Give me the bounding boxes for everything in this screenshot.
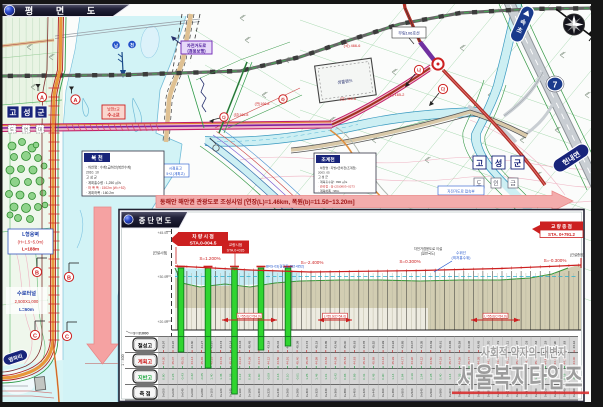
svg-text:45.45: 45.45 <box>248 341 252 349</box>
svg-text:0+080: 0+080 <box>200 388 204 397</box>
svg-text:0.90: 0.90 <box>381 373 385 379</box>
svg-text:서울복지타임즈: 서울복지타임즈 <box>457 363 582 393</box>
svg-text:· 관리청 : 김-(25)0803~0273: · 관리청 : 김-(25)0803~0273 <box>318 183 355 188</box>
svg-text:43.22: 43.22 <box>171 341 175 349</box>
svg-text:(전)166.8: (전)166.8 <box>255 101 270 106</box>
svg-text:0+340: 0+340 <box>324 388 328 397</box>
svg-text:조계천: 조계천 <box>321 156 335 163</box>
svg-text:· 하천명 : 지방2급하천(조계천): · 하천명 : 지방2급하천(조계천) <box>318 165 356 170</box>
svg-text:0+000: 0+000 <box>162 388 166 397</box>
svg-text:45.63: 45.63 <box>353 341 357 349</box>
svg-text:인: 인 <box>493 181 499 188</box>
svg-text:0.80: 0.80 <box>162 373 166 379</box>
svg-text:0+400: 0+400 <box>353 388 357 397</box>
svg-text:45.59: 45.59 <box>458 341 462 349</box>
svg-text:43.45: 43.45 <box>477 341 481 349</box>
svg-text:44.86: 44.86 <box>276 357 280 365</box>
svg-text:45.61: 45.61 <box>439 341 443 349</box>
svg-text:45.01: 45.01 <box>181 357 185 365</box>
svg-text:자전거도로 접속부: 자전거도로 접속부 <box>447 189 475 194</box>
svg-text:고 성 군: 고 성 군 <box>86 175 97 180</box>
svg-text:0+560: 0+560 <box>429 388 433 397</box>
svg-text:45.19: 45.19 <box>314 341 318 349</box>
svg-text:라: 라 <box>281 96 285 102</box>
svg-text:지반고: 지반고 <box>138 374 153 382</box>
svg-text:0+320: 0+320 <box>314 388 318 397</box>
svg-text:43.39: 43.39 <box>429 341 433 349</box>
svg-text:0.10: 0.10 <box>286 373 290 379</box>
svg-text:0+280: 0+280 <box>295 388 299 397</box>
svg-text:45.40: 45.40 <box>295 357 299 365</box>
svg-text:1.40: 1.40 <box>209 373 213 379</box>
svg-text:(겸용보행): (겸용보행) <box>187 48 206 55</box>
svg-text:B: B <box>67 276 71 282</box>
svg-text:-0.25: -0.25 <box>200 373 204 380</box>
svg-text:0.41: 0.41 <box>362 373 366 379</box>
svg-text:· 계획홍수량 : 1,250 ㎥/s: · 계획홍수량 : 1,250 ㎥/s <box>86 180 121 185</box>
svg-text:B: B <box>35 271 39 277</box>
svg-text:0.40: 0.40 <box>439 373 443 379</box>
svg-text:0+100: 0+100 <box>209 388 213 397</box>
svg-text:(건설종점): (건설종점) <box>570 252 584 257</box>
svg-text:-0.32: -0.32 <box>190 373 194 380</box>
svg-text:45.00: 45.00 <box>343 341 347 349</box>
svg-text:1.14: 1.14 <box>448 373 452 379</box>
svg-text:1.25: 1.25 <box>305 373 309 379</box>
svg-text:절성고: 절성고 <box>138 342 153 350</box>
svg-text:0.45: 0.45 <box>372 373 376 379</box>
svg-text:STA.0+035: STA.0+035 <box>227 249 245 253</box>
svg-text:0+200: 0+200 <box>257 388 261 397</box>
svg-text:수-2교: 수-2교 <box>107 112 120 119</box>
svg-text:0.89: 0.89 <box>353 373 357 379</box>
svg-text:천: 천 <box>130 42 134 49</box>
svg-text:0+420: 0+420 <box>362 388 366 397</box>
svg-text:· 계획홍수량 : 890 ㎥/s: · 계획홍수량 : 890 ㎥/s <box>318 179 348 184</box>
svg-text:0+260: 0+260 <box>286 388 290 397</box>
svg-text:44.98: 44.98 <box>334 357 338 365</box>
svg-text:(최저홍수위): (최저홍수위) <box>452 255 471 260</box>
svg-text:7: 7 <box>553 80 558 90</box>
svg-text:44.74: 44.74 <box>257 357 261 365</box>
svg-text:시점표고: 시점표고 <box>169 166 183 171</box>
svg-text:남: 남 <box>114 42 118 49</box>
svg-text:L=55.0(C=54.0): L=55.0(C=54.0) <box>238 314 260 318</box>
svg-text:0+440: 0+440 <box>372 388 376 397</box>
svg-text:도: 도 <box>10 127 14 132</box>
svg-text:1.14: 1.14 <box>391 373 395 379</box>
svg-text:44.12: 44.12 <box>267 357 271 365</box>
svg-text:44.65: 44.65 <box>448 341 452 349</box>
svg-text:44.84: 44.84 <box>324 357 328 365</box>
svg-text:동해안 해안권 관광도로 조성사업 [연장(L)=1.46k: 동해안 해안권 관광도로 조성사업 [연장(L)=1.46km, 폭원(b)=1… <box>160 198 355 206</box>
svg-text:44.63: 44.63 <box>353 357 357 365</box>
svg-text:45.99: 45.99 <box>391 357 395 365</box>
svg-text:무림106호선: 무림106호선 <box>398 30 420 36</box>
svg-text:도: 도 <box>87 6 96 16</box>
svg-text:-0.42: -0.42 <box>334 373 338 380</box>
svg-text:1.01: 1.01 <box>324 373 328 379</box>
svg-text:종 단 면 도: 종 단 면 도 <box>139 216 172 225</box>
svg-text:L형옹벽: L형옹벽 <box>22 231 39 238</box>
svg-text:S=1.200%: S=1.200% <box>199 256 220 261</box>
svg-text:44.12: 44.12 <box>381 357 385 365</box>
svg-text:L=55.0(C=54.0): L=55.0(C=54.0) <box>484 314 506 318</box>
svg-text:44.14: 44.14 <box>190 357 194 365</box>
svg-text:0+040: 0+040 <box>181 388 185 397</box>
svg-text:-0.01: -0.01 <box>295 373 299 380</box>
svg-text:BRG-03(경간장 882+852): BRG-03(경간장 882+852) <box>266 264 304 269</box>
svg-text:44.30: 44.30 <box>190 341 194 349</box>
svg-text:0+220: 0+220 <box>267 388 271 397</box>
svg-text:43.19: 43.19 <box>267 341 271 349</box>
svg-text:C: C <box>33 334 37 340</box>
svg-text:(일반국도): (일반국도) <box>421 251 435 256</box>
svg-text:43.35: 43.35 <box>419 341 423 349</box>
svg-text:0.12: 0.12 <box>238 373 242 379</box>
svg-text:44.72: 44.72 <box>305 341 309 349</box>
svg-text:C: C <box>65 335 69 341</box>
svg-text:고: 고 <box>476 159 484 168</box>
svg-text:1.46: 1.46 <box>314 373 318 379</box>
svg-text:44.92: 44.92 <box>410 357 414 365</box>
svg-text:성: 성 <box>495 158 502 168</box>
svg-text:0.28: 0.28 <box>429 373 433 379</box>
svg-text:0.66: 0.66 <box>248 373 252 379</box>
svg-text:군: 군 <box>38 108 45 117</box>
svg-text:S=-0.300%: S=-0.300% <box>544 258 567 263</box>
svg-text:· 하천명 : 수계1급하천(북천수계): · 하천명 : 수계1급하천(북천수계) <box>86 165 131 170</box>
svg-text:44.16: 44.16 <box>439 357 443 365</box>
svg-text:45.38: 45.38 <box>295 341 299 349</box>
svg-text:45.89: 45.89 <box>372 357 376 365</box>
svg-text:44.58: 44.58 <box>314 357 318 365</box>
svg-text:대: 대 <box>38 126 42 133</box>
svg-text:S=0.300%: S=0.300% <box>399 259 420 264</box>
svg-text:45.77: 45.77 <box>448 357 452 365</box>
svg-text:0+060: 0+060 <box>190 388 194 397</box>
svg-text:45.65: 45.65 <box>200 357 204 365</box>
svg-text:(답) 466-8: (답) 466-8 <box>340 96 356 101</box>
svg-text:0+540: 0+540 <box>419 388 423 397</box>
svg-text:2003. 05: 2003. 05 <box>318 171 330 175</box>
svg-text:+30.00: +30.00 <box>158 275 169 279</box>
svg-text:44.78: 44.78 <box>362 341 366 349</box>
svg-text:45.16: 45.16 <box>362 357 366 365</box>
svg-text:44.27: 44.27 <box>200 341 204 349</box>
svg-text:2010. 10: 2010. 10 <box>86 171 99 175</box>
svg-text:43.07: 43.07 <box>410 341 414 349</box>
svg-text:44.24: 44.24 <box>238 357 242 365</box>
svg-text:-0.43: -0.43 <box>181 373 185 380</box>
svg-text:2,500X1,000: 2,500X1,000 <box>15 299 39 304</box>
svg-text:고: 고 <box>10 108 17 117</box>
svg-text:군: 군 <box>514 159 522 168</box>
svg-text:45.53: 45.53 <box>343 357 347 365</box>
svg-text:수로터널: 수로터널 <box>17 289 36 297</box>
svg-text:+20.00: +20.00 <box>158 320 169 324</box>
svg-text:금: 금 <box>510 181 516 188</box>
svg-text:고 성 군: 고 성 군 <box>318 174 328 179</box>
svg-text:성: 성 <box>24 107 31 117</box>
svg-text:0.84: 0.84 <box>400 373 404 379</box>
svg-text:-0.09: -0.09 <box>267 373 271 380</box>
svg-text:0+580: 0+580 <box>439 388 443 397</box>
svg-text:(도) 165-2: (도) 165-2 <box>388 93 405 97</box>
svg-text:측 점: 측 점 <box>140 390 151 398</box>
svg-text:44.30: 44.30 <box>162 357 166 365</box>
svg-text:다: 다 <box>222 114 226 120</box>
svg-text:43.85: 43.85 <box>400 341 404 349</box>
svg-text:44.12: 44.12 <box>419 357 423 365</box>
svg-text:44.50: 44.50 <box>429 357 433 365</box>
svg-text:차 량 시 점: 차 량 시 점 <box>192 233 214 240</box>
svg-text:44.36: 44.36 <box>248 357 252 365</box>
svg-text:44.91: 44.91 <box>286 357 290 365</box>
svg-text:0+380: 0+380 <box>343 388 347 397</box>
svg-text:수위선: 수위선 <box>456 250 466 255</box>
svg-text:0.23: 0.23 <box>171 373 175 379</box>
svg-text:0.65: 0.65 <box>343 373 347 379</box>
svg-text:0+160: 0+160 <box>238 388 242 397</box>
svg-text:교 량 종 점: 교 량 종 점 <box>551 223 572 230</box>
svg-text:45.07: 45.07 <box>171 357 175 365</box>
svg-text:평: 평 <box>25 5 33 16</box>
svg-text:43.97: 43.97 <box>162 341 166 349</box>
svg-text:(답)166.8: (답)166.8 <box>234 112 249 117</box>
svg-text:0+360: 0+360 <box>334 388 338 397</box>
svg-text:45.52: 45.52 <box>372 341 376 349</box>
svg-text:교량시점: 교량시점 <box>229 242 242 247</box>
svg-text:0+500: 0+500 <box>400 388 404 397</box>
svg-text:43.35: 43.35 <box>324 341 328 349</box>
svg-text:면: 면 <box>24 126 28 132</box>
svg-text:0+180: 0+180 <box>248 388 252 397</box>
svg-text:44.99: 44.99 <box>381 341 385 349</box>
svg-text:0+240: 0+240 <box>276 388 280 397</box>
svg-text:44.79: 44.79 <box>219 357 223 365</box>
svg-text:44.77: 44.77 <box>400 357 404 365</box>
svg-text:L=188m: L=188m <box>22 247 39 252</box>
svg-text:44.94: 44.94 <box>391 341 395 349</box>
svg-text:A: A <box>74 98 78 104</box>
svg-text:나: 나 <box>417 67 421 74</box>
svg-text:1 : 400: 1 : 400 <box>121 354 125 366</box>
svg-text:사회적 약자의 대변자: 사회적 약자의 대변자 <box>481 345 568 361</box>
svg-text:0.13: 0.13 <box>276 373 280 379</box>
svg-text:A: A <box>40 96 44 102</box>
svg-text:43.43: 43.43 <box>238 341 242 349</box>
svg-text:L=55.0(C=54.0): L=55.0(C=54.0) <box>324 314 346 318</box>
svg-text:[건설시점]: [건설시점] <box>153 250 167 255</box>
svg-text:· 하 폭 폭 : 1502m (W=+52): · 하 폭 폭 : 1502m (W=+52) <box>86 185 126 190</box>
svg-text:0+480: 0+480 <box>391 388 395 397</box>
svg-text:1.45: 1.45 <box>219 373 223 379</box>
svg-text:0+600: 0+600 <box>448 388 452 397</box>
svg-text:45.04: 45.04 <box>276 341 280 349</box>
svg-text:43.46: 43.46 <box>334 341 338 349</box>
svg-text:0.60: 0.60 <box>257 373 261 379</box>
svg-text:0+120: 0+120 <box>219 388 223 397</box>
svg-text:0+020: 0+020 <box>171 388 175 397</box>
svg-text:5+2.(계획고): 5+2.(계획고) <box>166 171 184 176</box>
svg-text:1.04: 1.04 <box>419 373 423 379</box>
svg-text:남천2교: 남천2교 <box>107 107 120 112</box>
svg-text:· 계획하폭 : 160.2m: · 계획하폭 : 160.2m <box>86 190 114 195</box>
svg-text:(국) 466-6: (국) 466-6 <box>344 44 361 48</box>
svg-text:44.73: 44.73 <box>219 341 223 349</box>
svg-text:STA. 0+791.2: STA. 0+791.2 <box>548 232 575 237</box>
svg-text:-0.16: -0.16 <box>410 373 414 380</box>
svg-text:43.16: 43.16 <box>572 341 576 349</box>
svg-text:북 천: 북 천 <box>91 154 102 162</box>
svg-text:0+460: 0+460 <box>381 388 385 397</box>
svg-text:0+300: 0+300 <box>305 388 309 397</box>
svg-text:45.05: 45.05 <box>305 357 309 365</box>
svg-text:· 계획하폭 : 98m: · 계획하폭 : 98m <box>318 188 340 193</box>
svg-text:면: 면 <box>56 5 64 16</box>
svg-text:자전거겸용도로 이설: 자전거겸용도로 이설 <box>414 246 442 251</box>
svg-text:(H=1.5~5.0m): (H=1.5~5.0m) <box>18 240 44 245</box>
svg-text:0+520: 0+520 <box>410 388 414 397</box>
svg-text:L=60m: L=60m <box>19 307 34 312</box>
svg-text:44.08: 44.08 <box>467 341 471 349</box>
svg-text:계획고: 계획고 <box>138 358 153 366</box>
svg-text:STA.0-004.5: STA.0-004.5 <box>190 241 217 247</box>
